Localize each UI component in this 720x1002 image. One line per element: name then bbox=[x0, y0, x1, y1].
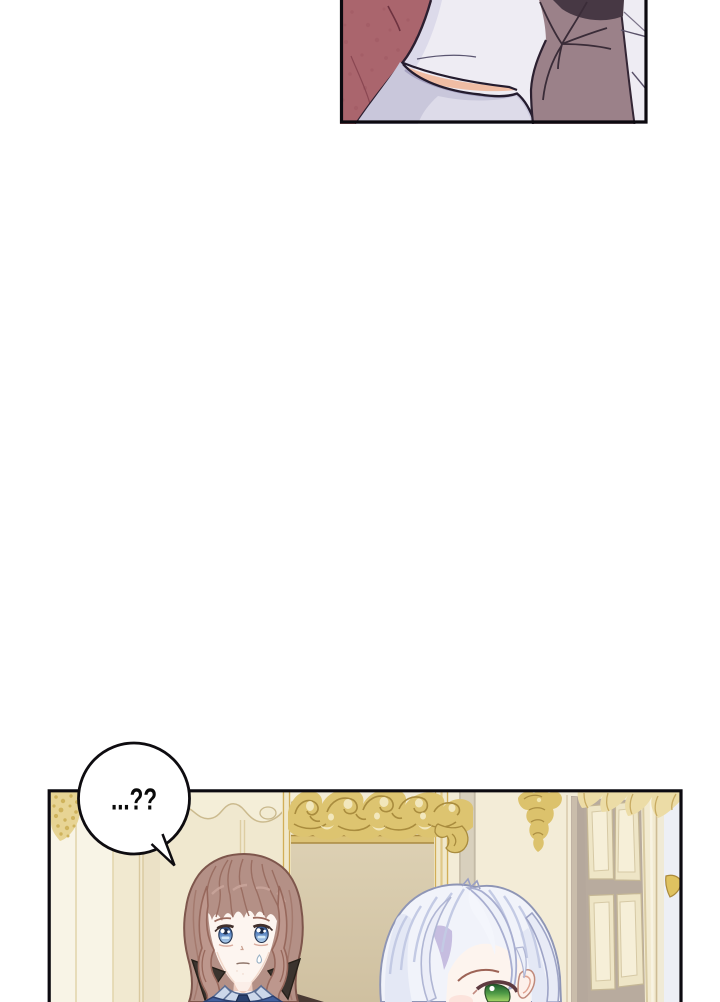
svg-text:...??: ...?? bbox=[111, 783, 157, 817]
